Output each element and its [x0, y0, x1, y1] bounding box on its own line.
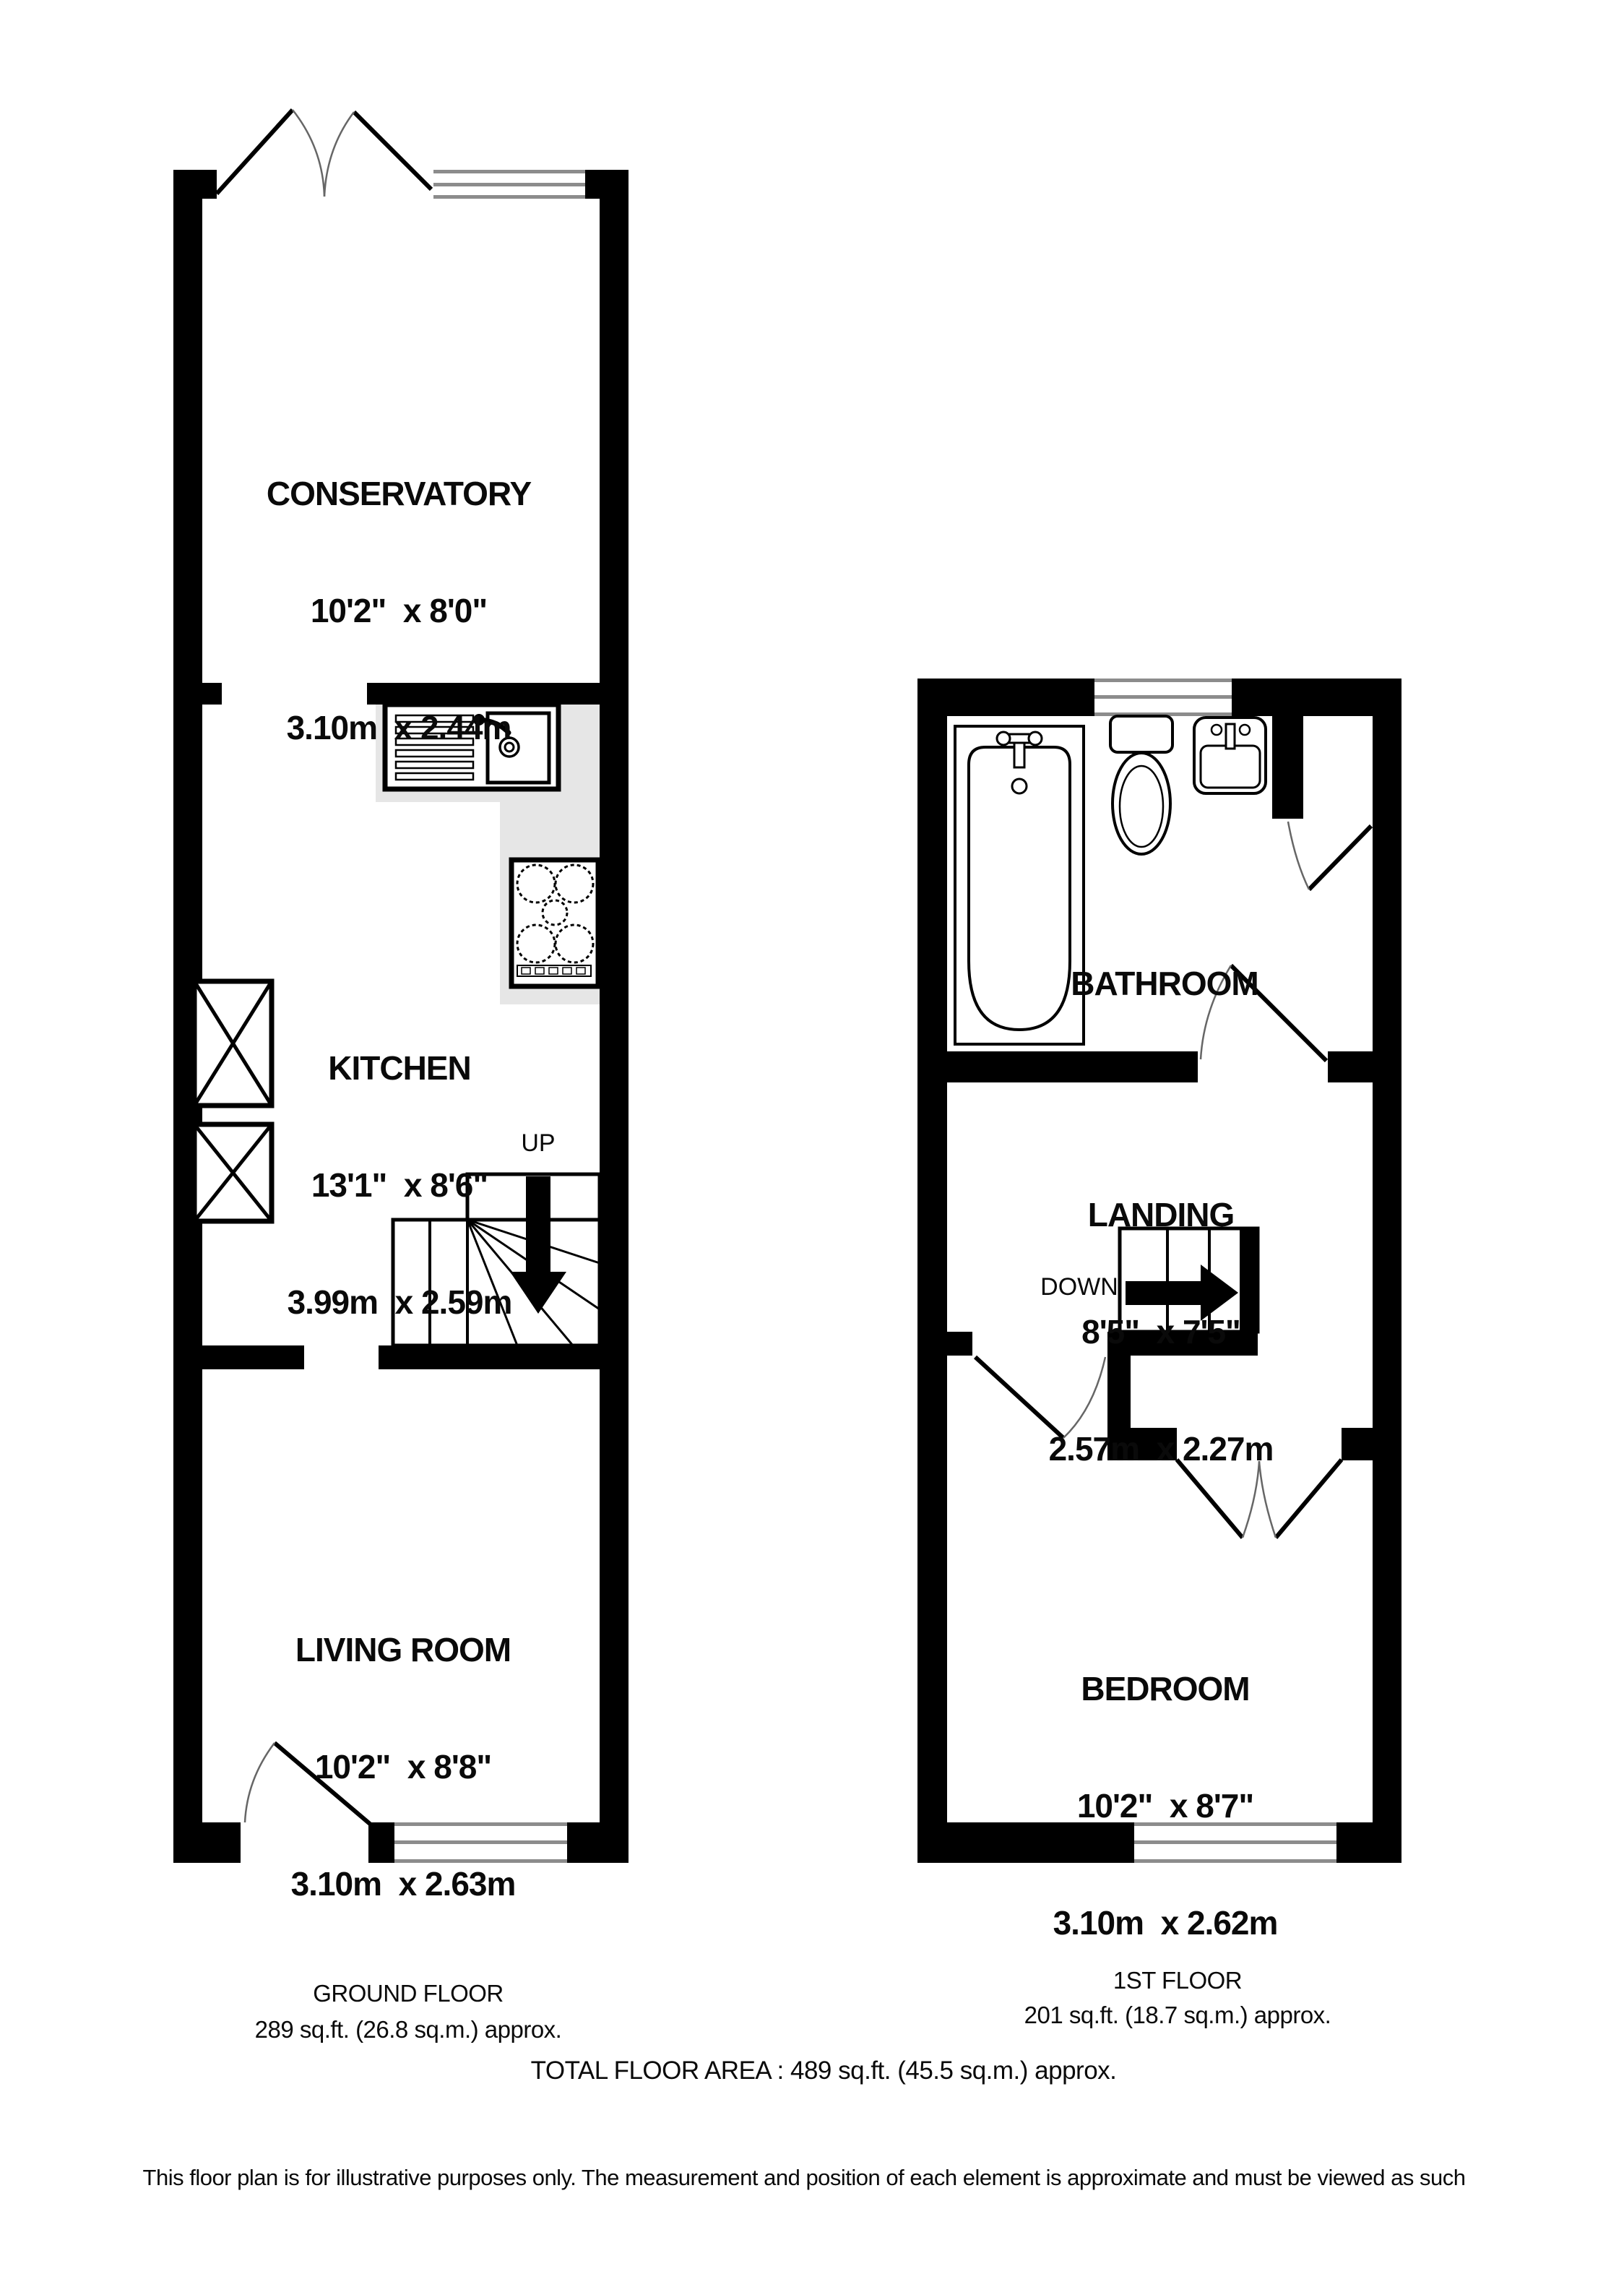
room-label-conservatory: CONSERVATORY 10'2" x 8'0" 3.10m x 2.44m	[267, 396, 531, 786]
door-icon	[1288, 822, 1371, 890]
appliance-icon	[194, 981, 272, 1106]
stairs-up-label: UP	[521, 1129, 555, 1158]
room-dims-imperial: 8'5" x 7'5"	[1049, 1312, 1274, 1351]
room-name: BEDROOM	[1053, 1669, 1278, 1708]
window-icon	[433, 170, 585, 199]
room-label-kitchen: KITCHEN 13'1" x 8'6" 3.99m x 2.59m	[288, 970, 512, 1361]
room-dims-metric: 3.10m x 2.44m	[267, 708, 531, 747]
room-name: BATHROOM	[1071, 964, 1258, 1003]
toilet-icon	[1110, 716, 1172, 854]
room-dims-imperial: 10'2" x 8'7"	[1053, 1786, 1278, 1825]
room-label-living-room: LIVING ROOM 10'2" x 8'8" 3.10m x 2.63m	[291, 1552, 516, 1942]
room-dims-imperial: 10'2" x 8'0"	[267, 591, 531, 630]
room-name: CONSERVATORY	[267, 474, 531, 513]
floorplan-canvas	[0, 0, 1624, 2274]
stairs-down-label: DOWN	[1040, 1273, 1118, 1301]
room-dims-metric: 3.99m x 2.59m	[288, 1283, 512, 1322]
first-floor-caption-area: 201 sq.ft. (18.7 sq.m.) approx.	[1024, 2002, 1331, 2029]
room-dims-metric: 2.57m x 2.27m	[1049, 1429, 1274, 1468]
window-icon	[1094, 679, 1232, 716]
room-label-bedroom: BEDROOM 10'2" x 8'7" 3.10m x 2.62m	[1053, 1591, 1278, 1981]
basin-icon	[1194, 718, 1266, 793]
disclaimer-text: This floor plan is for illustrative purp…	[143, 2165, 1466, 2191]
room-dims-imperial: 10'2" x 8'8"	[291, 1747, 516, 1786]
floorplan-page: CONSERVATORY 10'2" x 8'0" 3.10m x 2.44m …	[0, 0, 1624, 2274]
room-dims-metric: 3.10m x 2.62m	[1053, 1903, 1278, 1942]
room-label-landing: LANDING 8'5" x 7'5" 2.57m x 2.27m	[1049, 1117, 1274, 1507]
french-doors-icon	[217, 110, 431, 197]
total-floor-area: TOTAL FLOOR AREA : 489 sq.ft. (45.5 sq.m…	[531, 2056, 1117, 2085]
room-name: LANDING	[1049, 1195, 1274, 1234]
room-label-bathroom: BATHROOM	[1071, 886, 1258, 1042]
room-name: LIVING ROOM	[291, 1630, 516, 1669]
hob-icon	[511, 860, 598, 986]
room-dims-metric: 3.10m x 2.63m	[291, 1864, 516, 1903]
appliance-icon	[194, 1124, 272, 1221]
ground-floor-caption-title: GROUND FLOOR	[313, 1980, 504, 2007]
ground-floor-caption-area: 289 sq.ft. (26.8 sq.m.) approx.	[255, 2016, 562, 2043]
room-name: KITCHEN	[288, 1048, 512, 1088]
first-floor-caption-title: 1ST FLOOR	[1113, 1967, 1242, 1994]
room-dims-imperial: 13'1" x 8'6"	[288, 1166, 512, 1205]
bath-icon	[955, 726, 1084, 1044]
